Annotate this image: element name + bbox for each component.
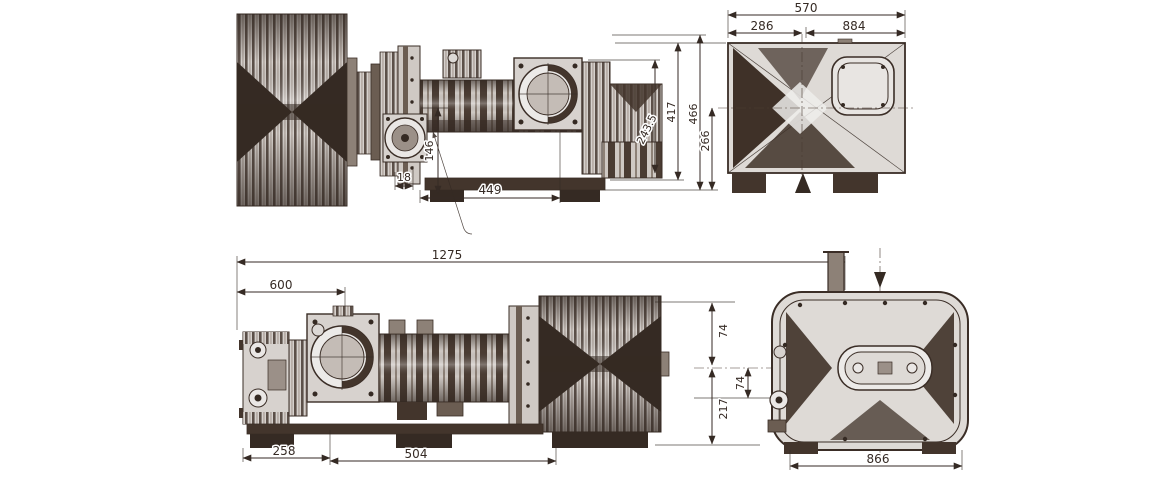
center-mark — [874, 272, 886, 288]
dim-18: 18 — [397, 171, 411, 184]
dim-570: 570 — [795, 1, 818, 15]
dim-286: 286 — [751, 19, 774, 33]
discharge-port — [838, 346, 932, 390]
small-port-flange — [383, 114, 427, 162]
technical-drawing-canvas: 18 146 449 243.5 417 466 266 — [0, 0, 1160, 480]
eyebolt — [448, 53, 458, 63]
dim-266: 266 — [699, 131, 712, 152]
gear-end-unit — [239, 332, 289, 424]
dim-884: 884 — [843, 19, 866, 33]
foot — [552, 432, 648, 448]
foot — [430, 190, 464, 202]
top-port — [443, 50, 481, 78]
center-mark — [795, 173, 811, 193]
foot — [833, 173, 878, 193]
foot — [396, 434, 452, 448]
motor-band — [237, 104, 347, 120]
foot — [732, 173, 766, 193]
dim-504: 504 — [405, 447, 428, 461]
dim-146: 146 — [423, 141, 436, 162]
bottom-end-view — [768, 248, 968, 462]
blower-body — [379, 320, 509, 420]
connector — [289, 340, 307, 416]
top-end-dimensions: 570 286 884 — [728, 1, 905, 38]
shaft-end — [661, 352, 669, 376]
dim-1275: 1275 — [432, 248, 463, 262]
dim-217: 217 — [717, 399, 730, 420]
discharge-flange — [832, 57, 894, 115]
dim-258: 258 — [273, 444, 296, 458]
dim-449: 449 — [479, 183, 502, 197]
foot — [560, 190, 600, 202]
main-flange — [514, 58, 582, 130]
motor-flange-plate — [509, 306, 539, 426]
motor-finned-body — [237, 14, 347, 206]
motor-finned-body — [539, 296, 669, 432]
top-end-view — [718, 34, 915, 196]
dim-74-lower: 74 — [734, 376, 747, 390]
dim-417: 417 — [665, 102, 678, 123]
cad-drawing: 18 146 449 243.5 417 466 266 — [0, 0, 1160, 480]
silencer — [602, 142, 662, 178]
top-assembly: 18 146 449 243.5 417 466 266 — [237, 1, 915, 234]
bottom-assembly: 1275 600 — [237, 248, 968, 470]
dim-466: 466 — [687, 104, 700, 125]
dim-866: 866 — [867, 452, 890, 466]
bottom-side-view — [239, 296, 669, 448]
inlet-flange — [307, 306, 379, 402]
foot — [922, 442, 956, 454]
dim-600: 600 — [270, 278, 293, 292]
dim-74-upper: 74 — [717, 324, 730, 338]
top-side-view — [237, 14, 662, 206]
foot — [784, 442, 818, 454]
